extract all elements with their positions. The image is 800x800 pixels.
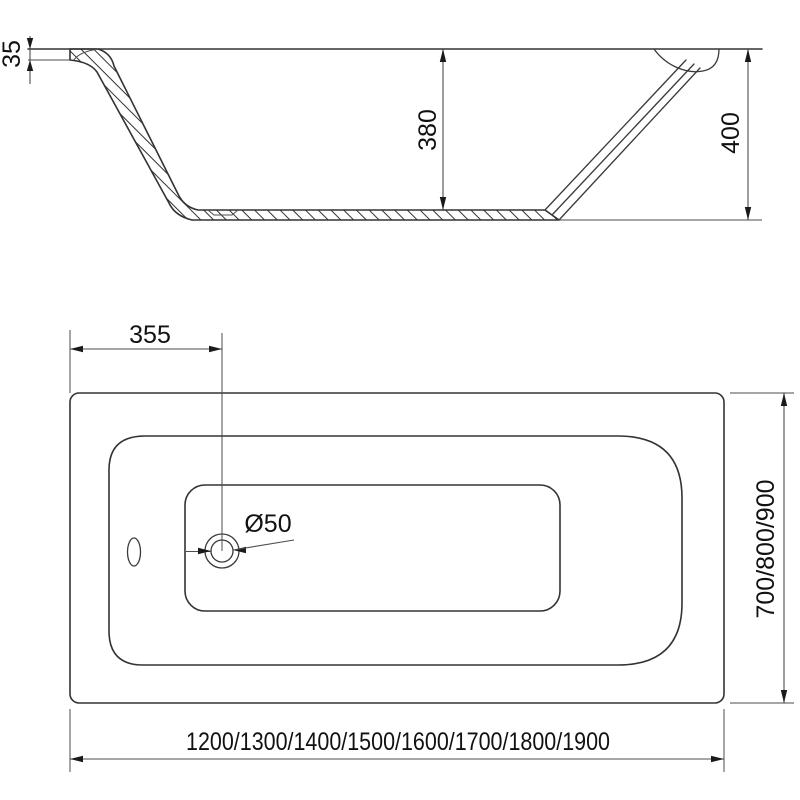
arrowhead-up-icon (745, 49, 751, 62)
overflow-hole (128, 538, 141, 566)
dim-label-rim-thickness: 35 (0, 40, 26, 68)
technical-drawing-page: 35 380 400 (0, 0, 800, 800)
arrowhead-down-icon (781, 690, 787, 703)
arrowhead-up-icon (440, 49, 446, 62)
dim-label-length-options: 1200/1300/1400/1500/1600/1700/1800/1900 (186, 728, 610, 756)
arrowhead-left-icon (70, 756, 83, 762)
tub-cut-section (70, 49, 559, 220)
arrowhead-right-icon (209, 346, 222, 352)
arrowhead-down-icon (27, 38, 33, 49)
dim-label-overall-height: 400 (717, 112, 745, 154)
tub-outer-edge (70, 393, 724, 703)
tub-inner-rim-edge (109, 436, 682, 665)
dim-label-drain-offset: 355 (129, 321, 171, 349)
dim-drain-offset: 355 (70, 321, 222, 393)
plan-top-view: 355 Ø50 700/800/900 1200/1300/1400/1 (70, 321, 794, 772)
dim-drain-diameter: Ø50 (186, 510, 294, 554)
arrowhead-up-icon (27, 60, 33, 71)
dim-width-options: 700/800/900 (730, 393, 794, 703)
dim-overall-height: 400 (717, 49, 751, 220)
arrowhead-down-icon (745, 207, 751, 220)
dim-inner-depth: 380 (414, 49, 446, 210)
right-wall-contours (545, 49, 719, 220)
dim-length-options: 1200/1300/1400/1500/1600/1700/1800/1900 (70, 709, 724, 772)
bathtub-technical-drawing: 35 380 400 (0, 0, 800, 800)
arrowhead-right-icon (711, 756, 724, 762)
dim-label-drain-diameter: Ø50 (244, 510, 291, 538)
side-section-view: 35 380 400 (0, 36, 762, 220)
arrowhead-left-icon (70, 346, 83, 352)
dim-label-inner-depth: 380 (414, 109, 442, 151)
dim-label-width-options: 700/800/900 (752, 479, 780, 618)
arrowhead-down-icon (440, 197, 446, 210)
arrowhead-up-icon (781, 393, 787, 406)
